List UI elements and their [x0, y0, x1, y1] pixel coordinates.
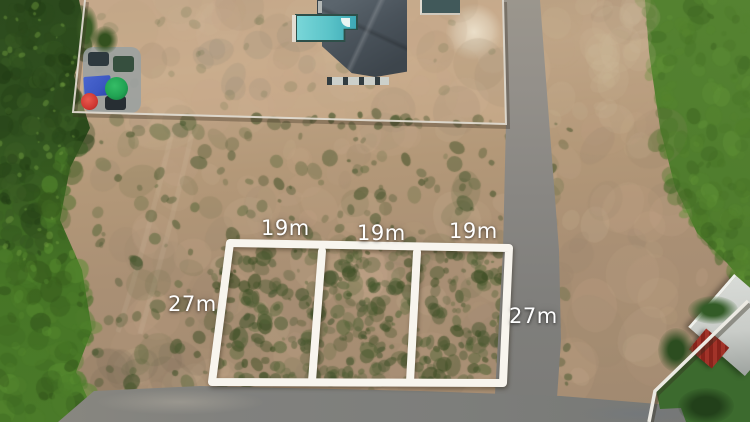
plot-boundary [212, 243, 509, 383]
plot-depth-label-right: 27m [509, 304, 558, 328]
aerial-photo-scene: 19m 19m 19m 27m 27m [0, 0, 750, 422]
plot-width-label-1: 19m [261, 216, 310, 240]
plot-outline-overlay [0, 0, 750, 422]
plot-depth-label-left: 27m [168, 292, 217, 316]
plot-divider-1 [312, 251, 322, 381]
plot-width-label-3: 19m [449, 219, 498, 243]
plot-divider-2 [410, 252, 417, 382]
plot-width-label-2: 19m [357, 221, 406, 245]
